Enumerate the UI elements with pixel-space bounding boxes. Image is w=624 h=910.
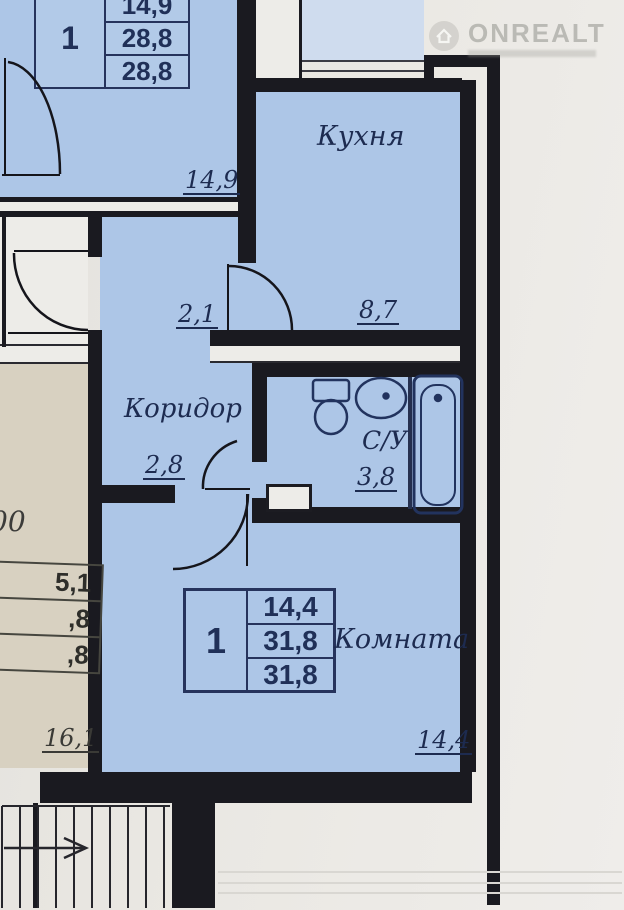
spec-row: 14,9 bbox=[106, 0, 188, 21]
wall-thin-landing-edge bbox=[2, 217, 6, 347]
wall-bathroom-west-upper bbox=[252, 363, 267, 462]
floor-plan-canvas: 1 14,9 28,8 28,8 1 14,4 31,8 31,8 5,1 ,8… bbox=[0, 0, 624, 910]
spec-table-unit-left-partial: 5,1 ,8 ,8 bbox=[0, 560, 104, 675]
dim-corridor-upper: 2,1 bbox=[176, 301, 218, 329]
watermark: ONREALT bbox=[428, 20, 606, 57]
dim-kitchen: 8,7 bbox=[357, 297, 399, 325]
spec-row: 14,4 bbox=[248, 591, 333, 623]
spec-row: ,8 bbox=[0, 632, 99, 672]
spec-row: 28,8 bbox=[106, 54, 188, 87]
spec-table-unit-top-left: 1 14,9 28,8 28,8 bbox=[34, 0, 190, 89]
unit-number: 1 bbox=[36, 0, 106, 87]
unit-number: 1 bbox=[186, 591, 248, 690]
spec-row: 28,8 bbox=[106, 21, 188, 54]
label-unit-left-partial: 00 bbox=[0, 505, 26, 538]
room-fill-shaft bbox=[256, 0, 299, 84]
wall-corridor-room-partition bbox=[95, 485, 175, 503]
spec-row: 31,8 bbox=[248, 623, 333, 657]
house-icon bbox=[428, 20, 462, 54]
wall-outer-right bbox=[487, 55, 500, 905]
duct-box bbox=[266, 484, 312, 512]
room-fill-stair-landing bbox=[0, 217, 88, 346]
label-bathroom: С/У bbox=[362, 426, 408, 455]
scan-texture-lines bbox=[218, 872, 622, 893]
wall-stem bbox=[172, 803, 215, 908]
spec-table-main-unit: 1 14,4 31,8 31,8 bbox=[183, 588, 336, 693]
stair-treads bbox=[20, 806, 164, 908]
wall-double-unit1-bottom bbox=[0, 197, 256, 217]
wall-cavity-band-under-kitchen bbox=[210, 346, 462, 363]
spec-row: 5,1 bbox=[0, 562, 102, 600]
wall-kitchen-bottom bbox=[210, 330, 462, 346]
dim-unit-top-left-room: 14,9 bbox=[183, 167, 240, 195]
tub-partition-line bbox=[408, 377, 412, 509]
label-room: Комната bbox=[334, 624, 469, 655]
spec-row: 31,8 bbox=[248, 657, 333, 691]
dim-room: 14,4 bbox=[415, 727, 472, 755]
wall-bathroom-top bbox=[252, 363, 462, 377]
wall bbox=[299, 0, 302, 84]
wall-kitchen-west bbox=[238, 85, 256, 263]
dim-corridor-lower: 2,8 bbox=[143, 452, 185, 480]
dim-unit-left-room: 16,1 bbox=[42, 725, 99, 753]
balcony-window-lines bbox=[302, 61, 424, 71]
wall-west-long bbox=[88, 330, 102, 772]
label-corridor: Коридор bbox=[124, 394, 242, 424]
watermark-brand: ONREALT bbox=[468, 20, 606, 46]
spec-row: ,8 bbox=[0, 596, 101, 636]
dim-bathroom: 3,8 bbox=[355, 464, 397, 492]
wall-cavity-band-left bbox=[0, 344, 90, 364]
wall-inner-right bbox=[460, 80, 476, 772]
watermark-tagline-blur bbox=[468, 50, 596, 57]
stair-direction-arrow-icon bbox=[64, 838, 86, 858]
room-fill-balcony bbox=[302, 0, 424, 60]
wall-landing-right-upper bbox=[88, 217, 102, 257]
wall-bottom bbox=[40, 772, 472, 803]
stairs bbox=[2, 806, 170, 908]
label-kitchen: Кухня bbox=[317, 121, 404, 152]
wall-thin-stair-edge bbox=[33, 803, 38, 908]
